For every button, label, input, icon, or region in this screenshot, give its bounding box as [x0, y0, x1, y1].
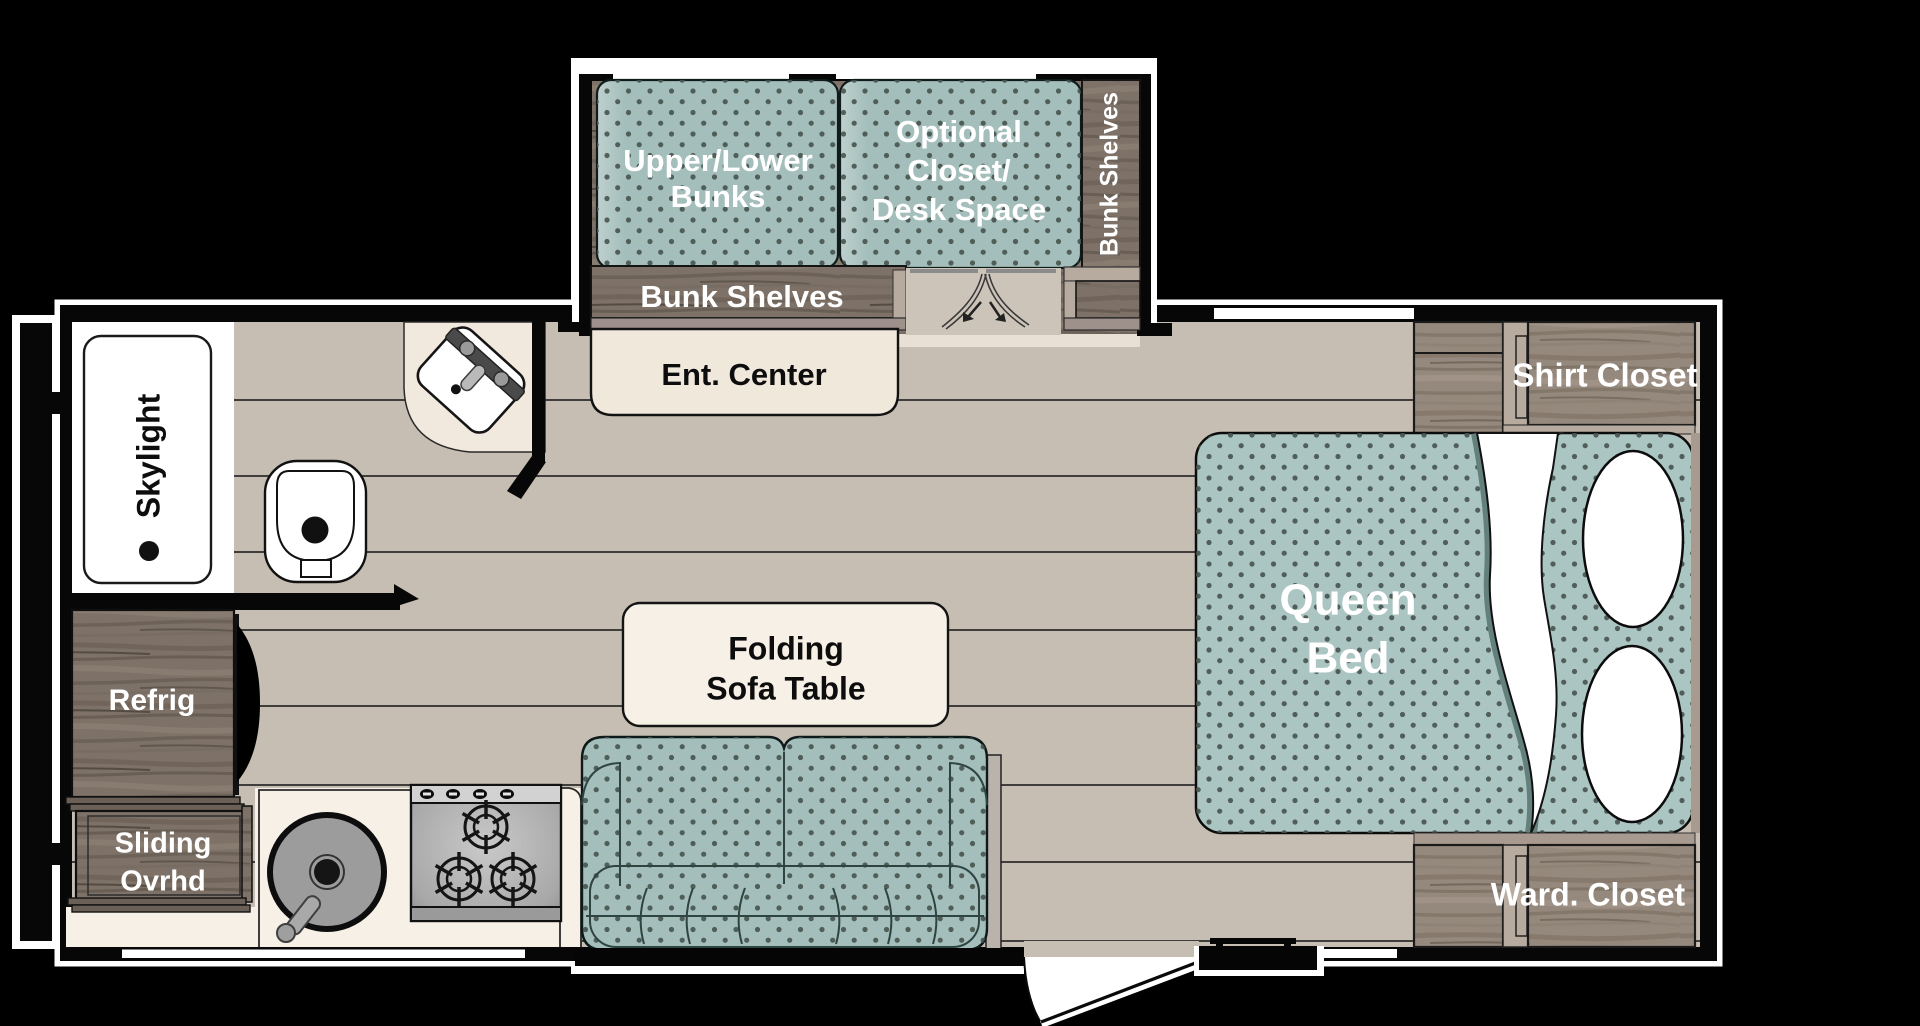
svg-text:Ward. Closet: Ward. Closet — [1491, 876, 1686, 912]
svg-text:Sliding: Sliding — [115, 828, 212, 860]
svg-text:Folding: Folding — [728, 630, 844, 666]
svg-text:Bed: Bed — [1306, 634, 1389, 683]
svg-text:Closet/: Closet/ — [907, 153, 1011, 188]
svg-text:Bunks: Bunks — [671, 179, 766, 214]
svg-text:Queen: Queen — [1280, 576, 1417, 625]
svg-text:Upper/Lower: Upper/Lower — [623, 143, 812, 178]
svg-text:Ent. Center: Ent. Center — [661, 357, 826, 392]
svg-text:Shirt Closet: Shirt Closet — [1512, 357, 1697, 394]
svg-text:Ovrhd: Ovrhd — [120, 866, 205, 898]
svg-text:Sofa Table: Sofa Table — [706, 670, 865, 706]
svg-text:Desk Space: Desk Space — [872, 192, 1046, 227]
svg-text:Refrig: Refrig — [109, 684, 196, 717]
svg-text:Bunk Shelves: Bunk Shelves — [640, 279, 843, 314]
svg-text:Bunk Shelves: Bunk Shelves — [1096, 92, 1124, 256]
svg-text:Optional: Optional — [896, 114, 1022, 149]
svg-text:Skylight: Skylight — [130, 393, 166, 518]
